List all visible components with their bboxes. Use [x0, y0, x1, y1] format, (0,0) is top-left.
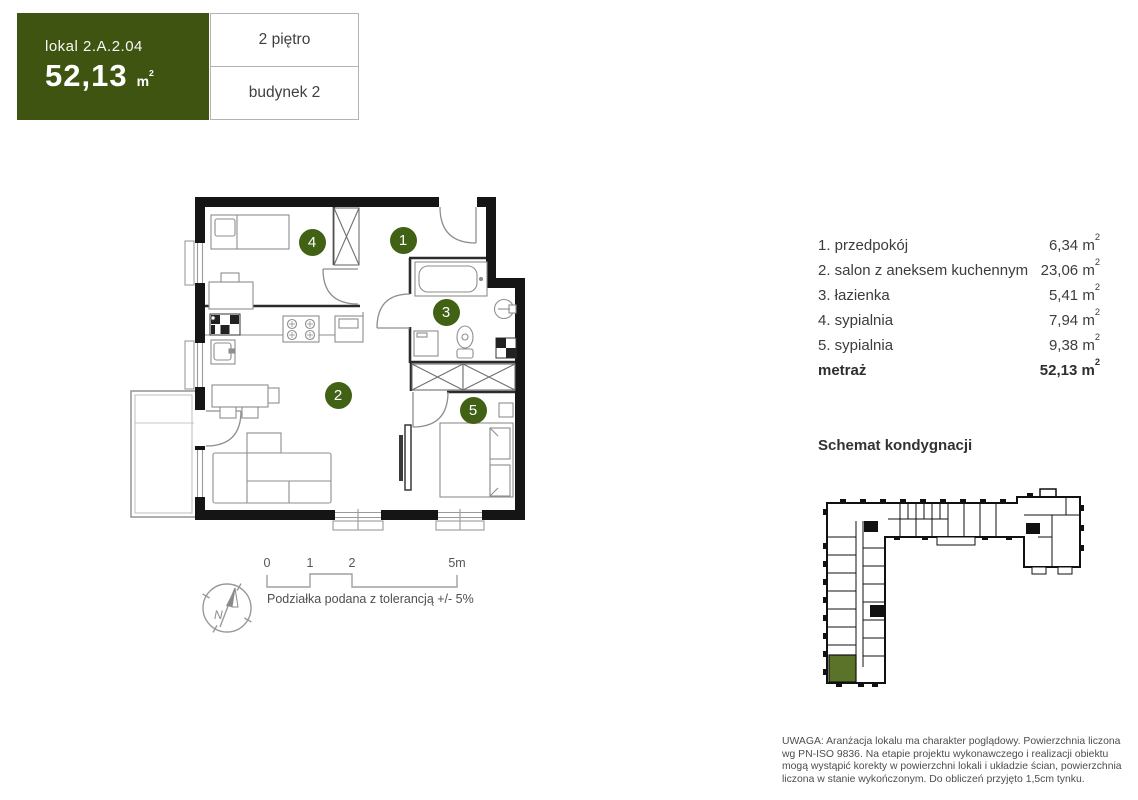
scale-tick-1: 1	[307, 556, 314, 570]
room-area: 9,38 m2	[1049, 333, 1100, 358]
room-marker-4: 4	[299, 229, 326, 256]
highlighted-unit	[829, 655, 856, 682]
total-area-value: 52,13	[1040, 362, 1078, 379]
washing-machine-icon	[414, 331, 438, 356]
disclaimer-text: UWAGA: Aranżacja lokalu ma charakter pog…	[782, 736, 1126, 786]
building-box: budynek 2	[210, 66, 359, 120]
room-label: 2. salon z aneksem kuchennym	[818, 258, 1028, 283]
room-area: 23,06 m2	[1041, 258, 1100, 283]
balcony	[131, 391, 196, 517]
scale-tick-2: 2	[349, 556, 356, 570]
unit-card: lokal 2.A.2.04 52,13m2	[17, 13, 209, 120]
room-area-unit: m2	[1082, 237, 1100, 254]
unit-base: m	[1081, 362, 1094, 379]
bed-single	[211, 215, 289, 249]
room-row: 1. przedpokój 6,34 m2	[818, 233, 1100, 258]
total-area-unit: m2	[1081, 362, 1100, 379]
scale-tick-0: 0	[264, 556, 271, 570]
tv-panel	[399, 425, 411, 490]
room-row: 5. sypialnia 9,38 m2	[818, 333, 1100, 358]
room-marker-1: 1	[390, 227, 417, 254]
room-label: 1. przedpokój	[818, 233, 908, 258]
compass-north-label: N	[214, 608, 223, 622]
floor-plan: 1 2 3 4 5	[125, 185, 545, 545]
room-area-unit: m2	[1082, 287, 1100, 304]
toilet-icon	[457, 326, 473, 358]
room-area-unit: m2	[1082, 262, 1100, 279]
compass-icon	[203, 584, 252, 633]
room-area-value: 7,94	[1049, 312, 1078, 329]
room-marker-2: 2	[325, 382, 352, 409]
room-label: 4. sypialnia	[818, 308, 893, 333]
room-row: 4. sypialnia 7,94 m2	[818, 308, 1100, 333]
unit-label: lokal 2.A.2.04	[45, 38, 209, 55]
unit-base: m	[1082, 337, 1095, 354]
unit-area: 52,13m2	[45, 58, 209, 94]
unit-sup: 2	[149, 68, 154, 78]
room-area-value: 9,38	[1049, 337, 1078, 354]
schematic-protrusion	[1032, 567, 1046, 574]
dining-table	[212, 385, 279, 418]
room-area: 7,94 m2	[1049, 308, 1100, 333]
room-area-value: 23,06	[1041, 262, 1079, 279]
desk	[209, 273, 253, 309]
coffee-table	[247, 433, 281, 453]
floor-schematic	[812, 485, 1092, 700]
kitchen-cabinet	[335, 316, 363, 342]
unit-sup: 2	[1095, 257, 1100, 267]
schematic-protrusion	[937, 537, 975, 545]
scale-note: Podziałka podana z tolerancją +/- 5%	[267, 592, 474, 606]
unit-sup: 2	[1095, 357, 1100, 367]
heater-box	[496, 338, 516, 358]
room-area-value: 6,34	[1049, 237, 1078, 254]
floorplan-page: { "header": { "unit_label": "lokal 2.A.2…	[0, 0, 1138, 800]
scale-widget: N 0 1 2 5m Podziałka podana z tolerancją…	[195, 550, 495, 650]
unit-base: m	[1082, 237, 1095, 254]
schematic-protrusion	[1058, 567, 1072, 574]
scale-tick-5m: 5m	[448, 556, 465, 570]
room-label: 5. sypialnia	[818, 333, 893, 358]
room-marker-3: 3	[433, 299, 460, 326]
room-marker-5: 5	[460, 397, 487, 424]
unit-sup: 2	[1095, 307, 1100, 317]
building-label: budynek 2	[249, 84, 321, 102]
floor-plan-drawing	[125, 185, 545, 545]
total-label: metraż	[818, 358, 866, 383]
schematic-title: Schemat kondygnacji	[818, 437, 972, 454]
room-list: 1. przedpokój 6,34 m2 2. salon z aneksem…	[818, 233, 1100, 383]
kitchen-appliance	[210, 314, 240, 335]
room-area-unit: m2	[1082, 337, 1100, 354]
total-area: 52,13 m2	[1040, 358, 1100, 383]
sofa	[213, 453, 331, 503]
room-area: 6,34 m2	[1049, 233, 1100, 258]
room-area-unit: m2	[1082, 312, 1100, 329]
unit-base: m	[1082, 312, 1095, 329]
unit-base: m	[1082, 287, 1095, 304]
room-row: 2. salon z aneksem kuchennym 23,06 m2	[818, 258, 1100, 283]
unit-area-value: 52,13	[45, 58, 128, 93]
scale-bar	[267, 574, 457, 587]
room-label: 3. łazienka	[818, 283, 890, 308]
unit-area-unit: m2	[137, 73, 154, 89]
unit-sup: 2	[1095, 232, 1100, 242]
kitchen-sink	[211, 340, 235, 364]
unit-sup: 2	[1095, 332, 1100, 342]
room-row: 3. łazienka 5,41 m2	[818, 283, 1100, 308]
floor-box: 2 piętro	[210, 13, 359, 67]
unit-base: m	[137, 73, 149, 89]
total-row: metraż 52,13 m2	[818, 358, 1100, 383]
sink-icon	[495, 300, 517, 319]
room-area: 5,41 m2	[1049, 283, 1100, 308]
unit-sup: 2	[1095, 282, 1100, 292]
room-area-value: 5,41	[1049, 287, 1078, 304]
unit-base: m	[1082, 262, 1095, 279]
floor-label: 2 piętro	[259, 31, 311, 49]
bathtub-icon	[415, 262, 487, 296]
stove	[283, 316, 319, 342]
